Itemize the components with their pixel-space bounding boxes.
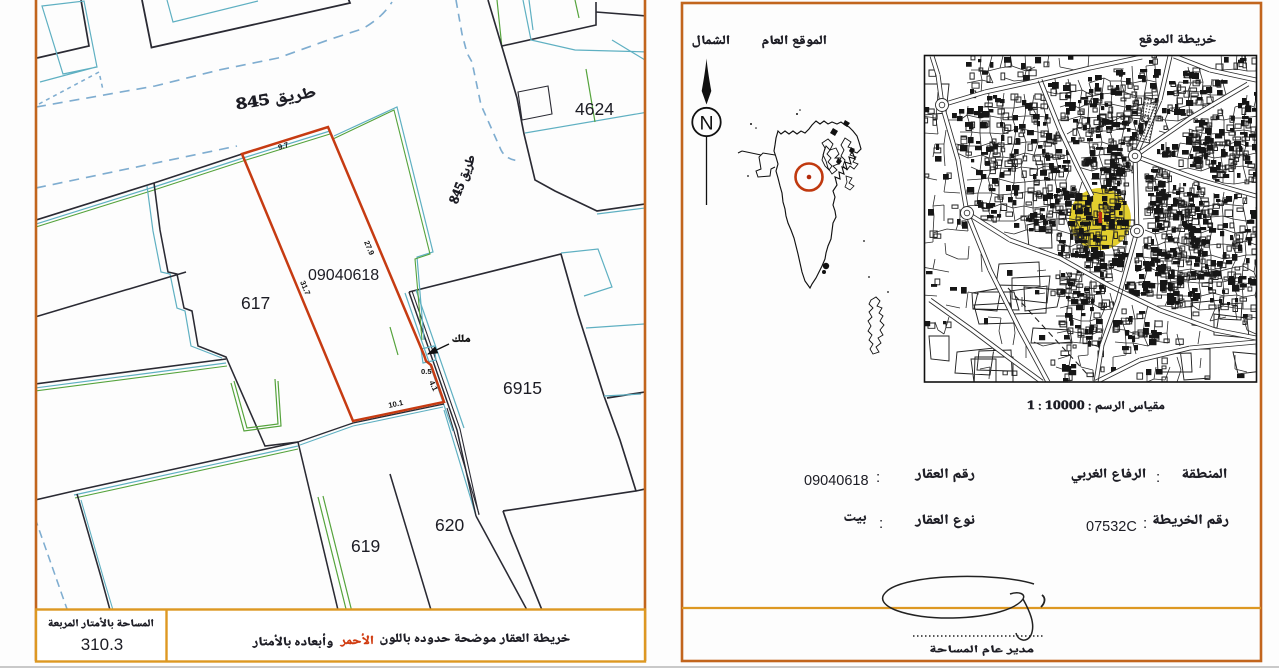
svg-text::: : [876,469,880,486]
svg-text::: : [1156,469,1160,486]
svg-text::: : [1143,515,1147,532]
svg-text:617: 617 [241,293,270,313]
svg-text:09040618: 09040618 [308,267,379,284]
svg-text:N: N [699,113,713,135]
svg-text:310.3: 310.3 [81,635,124,654]
svg-text:620: 620 [435,515,464,535]
svg-text:6915: 6915 [503,378,542,398]
svg-text:0.5: 0.5 [421,367,432,376]
svg-text:619: 619 [351,536,380,556]
svg-text::: : [879,515,883,532]
svg-text:07532C: 07532C [1086,519,1137,535]
svg-text:09040618: 09040618 [804,473,869,489]
svg-text:4624: 4624 [575,99,614,119]
